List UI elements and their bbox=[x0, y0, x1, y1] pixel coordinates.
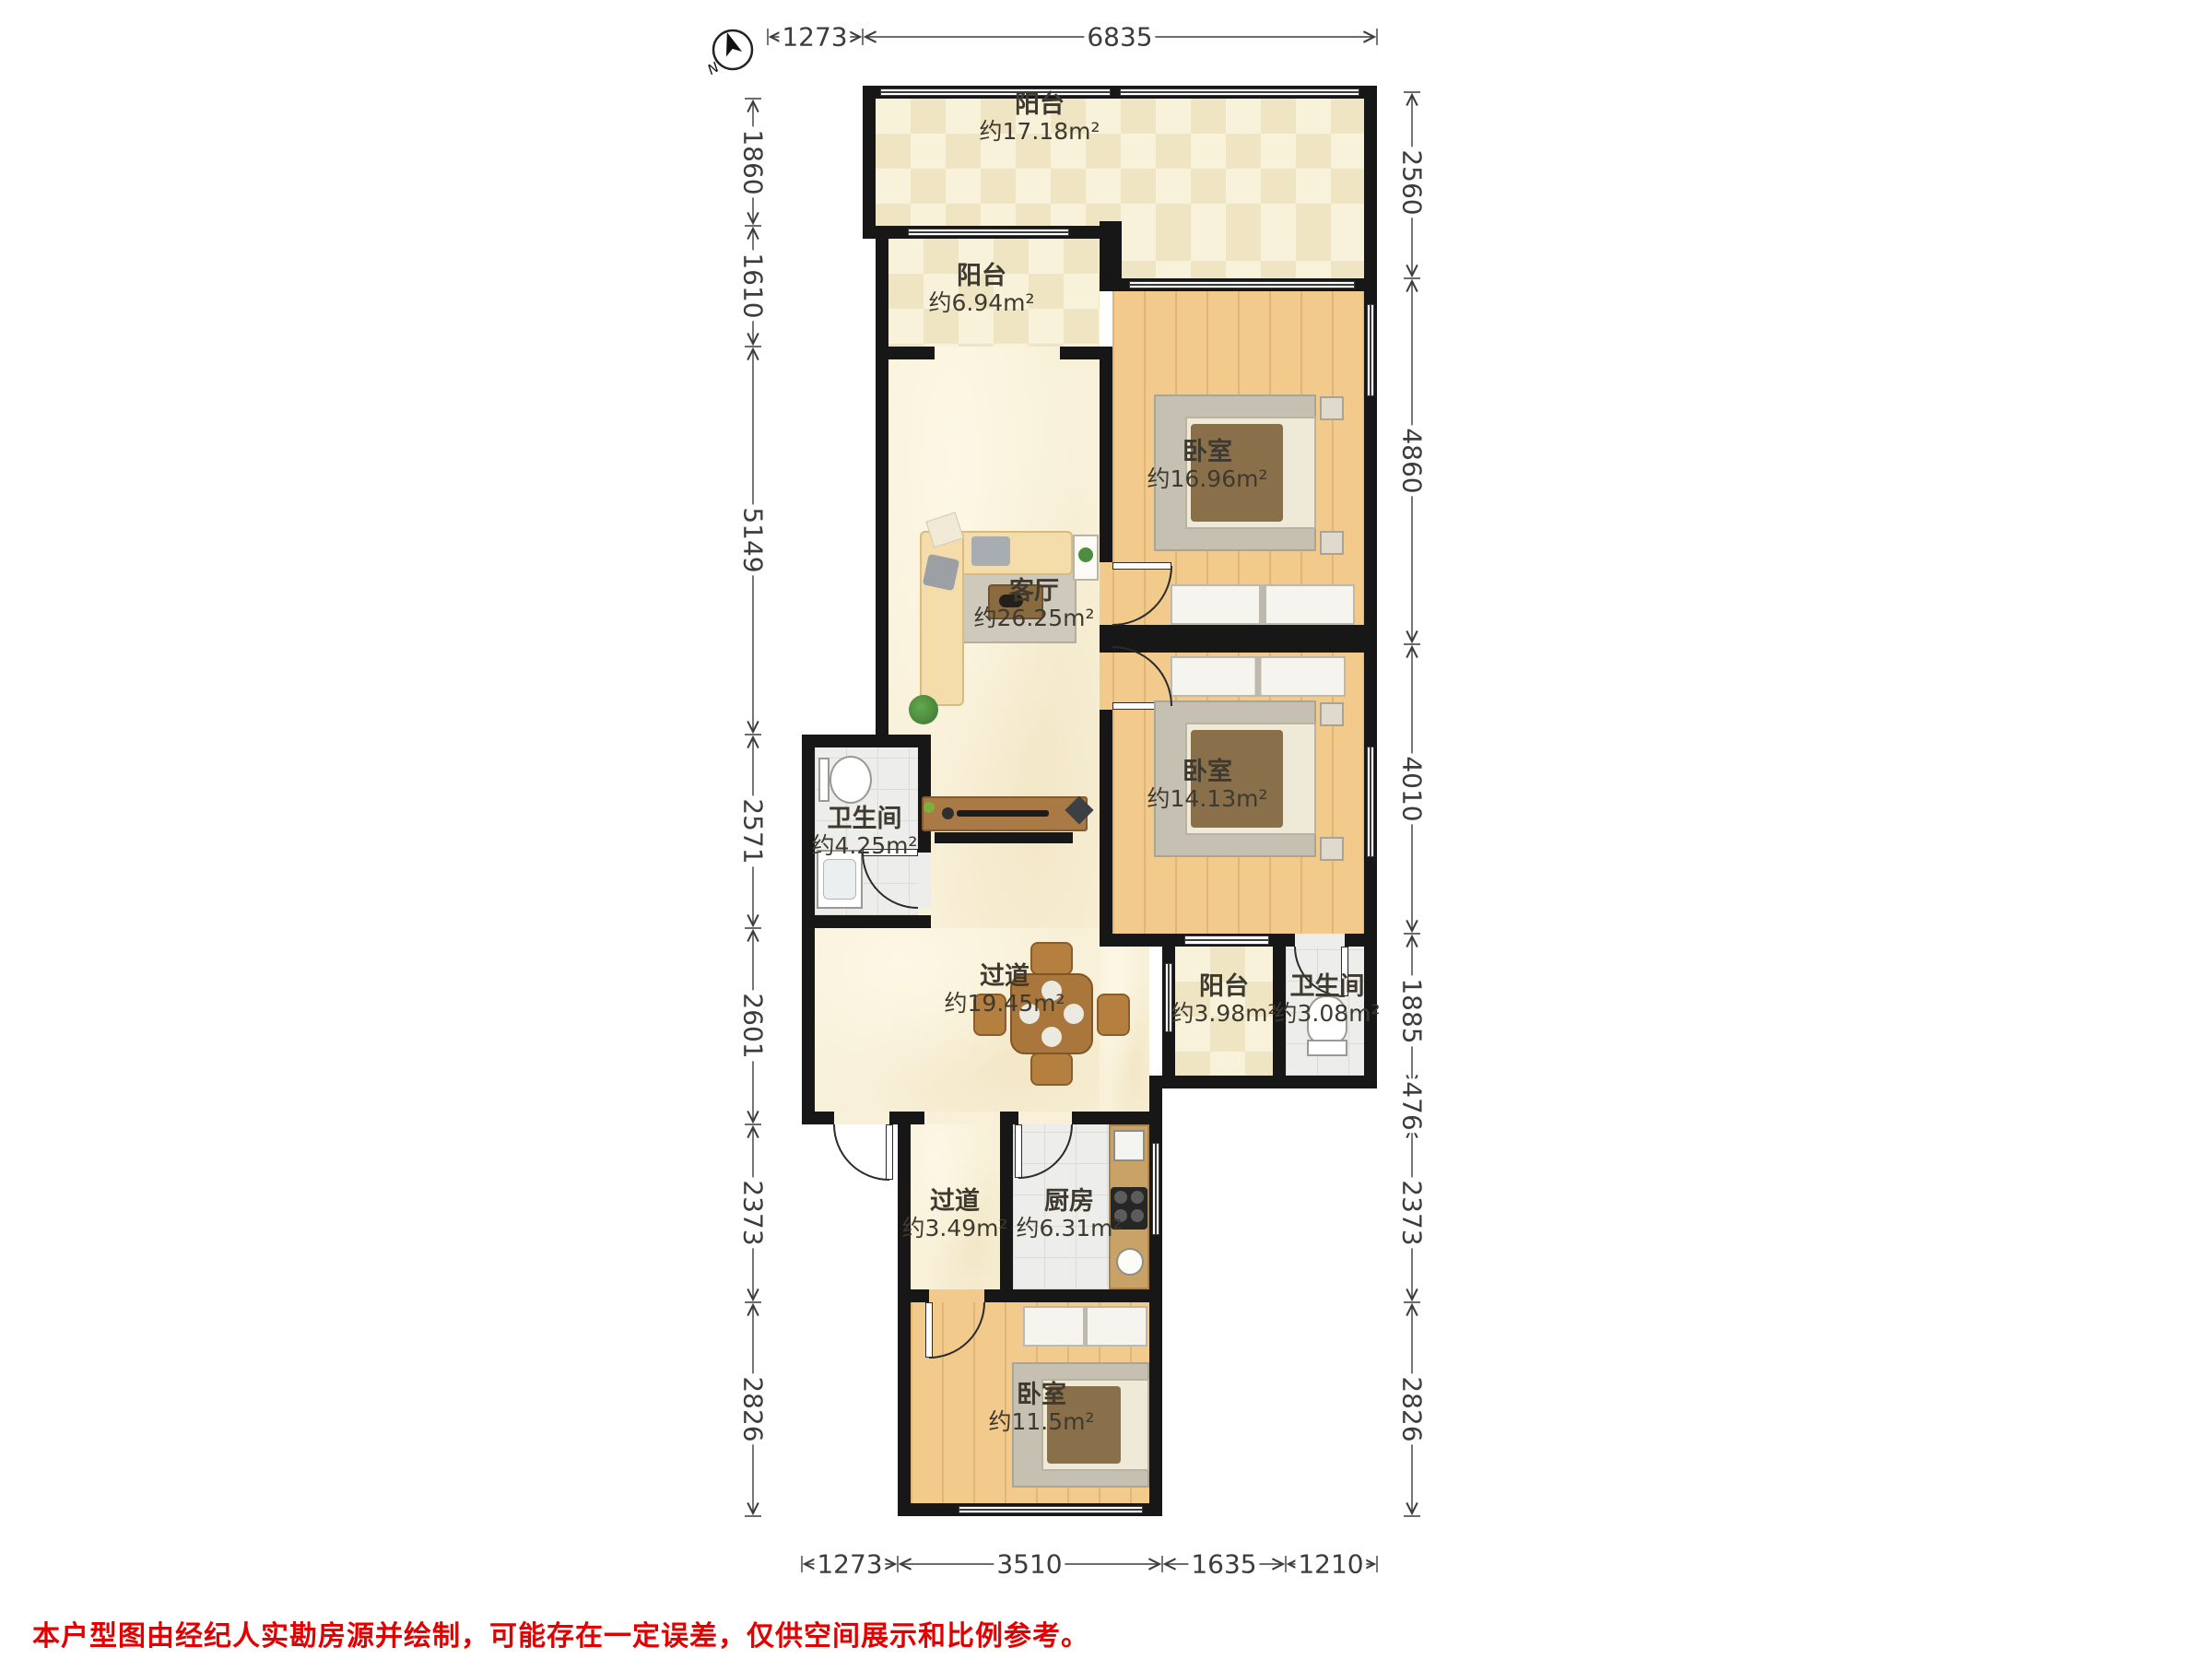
wall-segment bbox=[1100, 347, 1112, 562]
door-opening bbox=[929, 1289, 984, 1302]
window bbox=[1367, 747, 1374, 857]
room-label-bathroom-1: 卫生间 约4.25m² bbox=[811, 805, 917, 860]
room-label-living-room: 客厅 约26.25m² bbox=[974, 577, 1095, 632]
door-opening bbox=[1100, 653, 1112, 710]
room-label-hallway-1: 过道 约19.45m² bbox=[945, 962, 1065, 1018]
window bbox=[908, 229, 1069, 236]
wall-segment bbox=[802, 1112, 834, 1124]
floor-plan-canvas: N 阳台 约17.18m² 阳台 约6.94m² 卧室 约16.96m² 客厅 … bbox=[0, 0, 2212, 1659]
room-label-bedroom-1: 卧室 约16.96m² bbox=[1147, 438, 1268, 493]
door-leaf bbox=[886, 1124, 893, 1180]
dim-right-5: 476 bbox=[1396, 1078, 1429, 1133]
fridge bbox=[1113, 1130, 1145, 1161]
room-label-kitchen: 厨房 约6.31m² bbox=[1016, 1187, 1122, 1242]
dim-right-4: 1885 bbox=[1396, 975, 1429, 1046]
door-opening bbox=[1018, 1112, 1072, 1124]
wall-segment bbox=[802, 915, 931, 928]
dining-chair-right bbox=[1097, 994, 1130, 1036]
door-opening bbox=[924, 1112, 1000, 1124]
plate-icon bbox=[1064, 1004, 1084, 1024]
side-table-plant-icon bbox=[1078, 547, 1093, 562]
compass-needle-icon bbox=[719, 29, 742, 56]
floor-balcony-top bbox=[876, 99, 1364, 226]
dim-bottom-3: 1635 bbox=[1188, 1548, 1259, 1581]
door-opening bbox=[918, 853, 931, 908]
window bbox=[959, 1506, 1143, 1513]
room-label-hallway-2: 过道 约3.49m² bbox=[901, 1187, 1007, 1242]
wall-segment bbox=[889, 1112, 924, 1124]
wall-segment bbox=[863, 86, 876, 239]
toilet-tank-2 bbox=[1307, 1040, 1347, 1056]
wall-segment bbox=[984, 1289, 1162, 1302]
dim-right-6: 2373 bbox=[1396, 1177, 1429, 1248]
door-opening bbox=[1100, 562, 1112, 625]
toilet-bowl bbox=[829, 756, 872, 804]
bedroom2-nightstand bbox=[1320, 702, 1344, 726]
compass-north-label: N bbox=[705, 59, 723, 78]
window bbox=[1120, 88, 1359, 96]
sofa-cushion bbox=[971, 536, 1010, 566]
tv-screen bbox=[957, 810, 1049, 817]
sofa-cushion-2 bbox=[923, 554, 959, 591]
wall-segment bbox=[898, 1289, 929, 1302]
dim-left-7: 2826 bbox=[737, 1373, 770, 1444]
window bbox=[1129, 281, 1355, 288]
room-label-bedroom-2: 卧室 约14.13m² bbox=[1147, 758, 1268, 813]
bedroom2-nightstand bbox=[1320, 837, 1344, 861]
window bbox=[1367, 304, 1374, 396]
dim-right-3: 4010 bbox=[1396, 753, 1429, 824]
window bbox=[1184, 935, 1269, 945]
room-label-balcony-2: 阳台 约6.94m² bbox=[928, 262, 1034, 317]
bedroom3-wardrobe bbox=[1023, 1306, 1147, 1347]
bedroom2-wardrobe bbox=[1171, 656, 1346, 697]
door-leaf bbox=[925, 1302, 933, 1358]
dim-bottom-1: 1273 bbox=[814, 1548, 885, 1581]
dim-left-1: 1860 bbox=[737, 126, 770, 197]
bedroom1-nightstand bbox=[1320, 531, 1344, 555]
entry-door-arc bbox=[834, 1124, 889, 1180]
bedroom1-wardrobe bbox=[1171, 584, 1355, 625]
room-label-bathroom-2: 卫生间 约3.08m² bbox=[1274, 972, 1380, 1028]
dim-right-1: 2560 bbox=[1396, 147, 1429, 218]
wall-segment bbox=[1000, 1112, 1018, 1124]
wall-segment bbox=[876, 226, 888, 735]
disclaimer-text: 本户型图由经纪人实勘房源并绘制，可能存在一定误差，仅供空间展示和比例参考。 bbox=[32, 1613, 1089, 1653]
dim-left-2: 1610 bbox=[737, 250, 770, 321]
door-opening bbox=[1295, 934, 1345, 947]
plate-icon bbox=[1041, 1027, 1062, 1047]
burner-icon bbox=[1131, 1209, 1144, 1222]
dim-right-7: 2826 bbox=[1396, 1373, 1429, 1444]
compass: N bbox=[705, 29, 752, 78]
dining-chair-bottom bbox=[1030, 1053, 1073, 1086]
dim-top-1: 1273 bbox=[779, 21, 850, 53]
plant-icon bbox=[909, 695, 938, 724]
window bbox=[1152, 1143, 1159, 1235]
burner-icon bbox=[1131, 1191, 1144, 1204]
wall-segment bbox=[1149, 1302, 1162, 1516]
wall-segment bbox=[802, 735, 931, 747]
floor-balcony-top-right bbox=[1121, 226, 1364, 278]
dim-bottom-2: 3510 bbox=[994, 1548, 1065, 1581]
tv-half-wall bbox=[935, 832, 1073, 843]
kitchen-sink bbox=[1116, 1248, 1144, 1276]
dim-left-4: 2571 bbox=[737, 795, 770, 866]
wall-segment bbox=[1345, 934, 1377, 947]
room-label-balcony-3: 阳台 约3.98m² bbox=[1171, 972, 1277, 1028]
wall-segment bbox=[898, 1124, 911, 1516]
decor-plant-dot-icon bbox=[924, 802, 935, 813]
dim-left-5: 2601 bbox=[737, 990, 770, 1061]
dim-right-2: 4860 bbox=[1396, 425, 1429, 496]
compass-circle bbox=[713, 30, 752, 69]
toilet-tank bbox=[818, 758, 829, 802]
wall-segment bbox=[802, 735, 815, 1124]
dim-bottom-4: 1210 bbox=[1295, 1548, 1366, 1581]
wall-segment bbox=[876, 347, 935, 359]
wall-segment bbox=[1100, 710, 1112, 934]
wall-segment bbox=[1100, 625, 1377, 653]
dim-left-6: 2373 bbox=[737, 1177, 770, 1248]
door-opening bbox=[834, 1112, 889, 1124]
door-leaf bbox=[1112, 562, 1171, 570]
door-leaf bbox=[1015, 1124, 1022, 1178]
tv-speaker-icon bbox=[942, 807, 954, 819]
bedroom1-nightstand bbox=[1320, 396, 1344, 420]
bathroom-sink-basin bbox=[823, 859, 856, 900]
dim-left-3: 5149 bbox=[737, 504, 770, 575]
room-label-bedroom-3: 卧室 约11.5m² bbox=[988, 1381, 1094, 1436]
wall-segment bbox=[1149, 1076, 1377, 1088]
dim-top-2: 6835 bbox=[1084, 21, 1155, 53]
room-label-balcony-top: 阳台 约17.18m² bbox=[980, 90, 1100, 146]
